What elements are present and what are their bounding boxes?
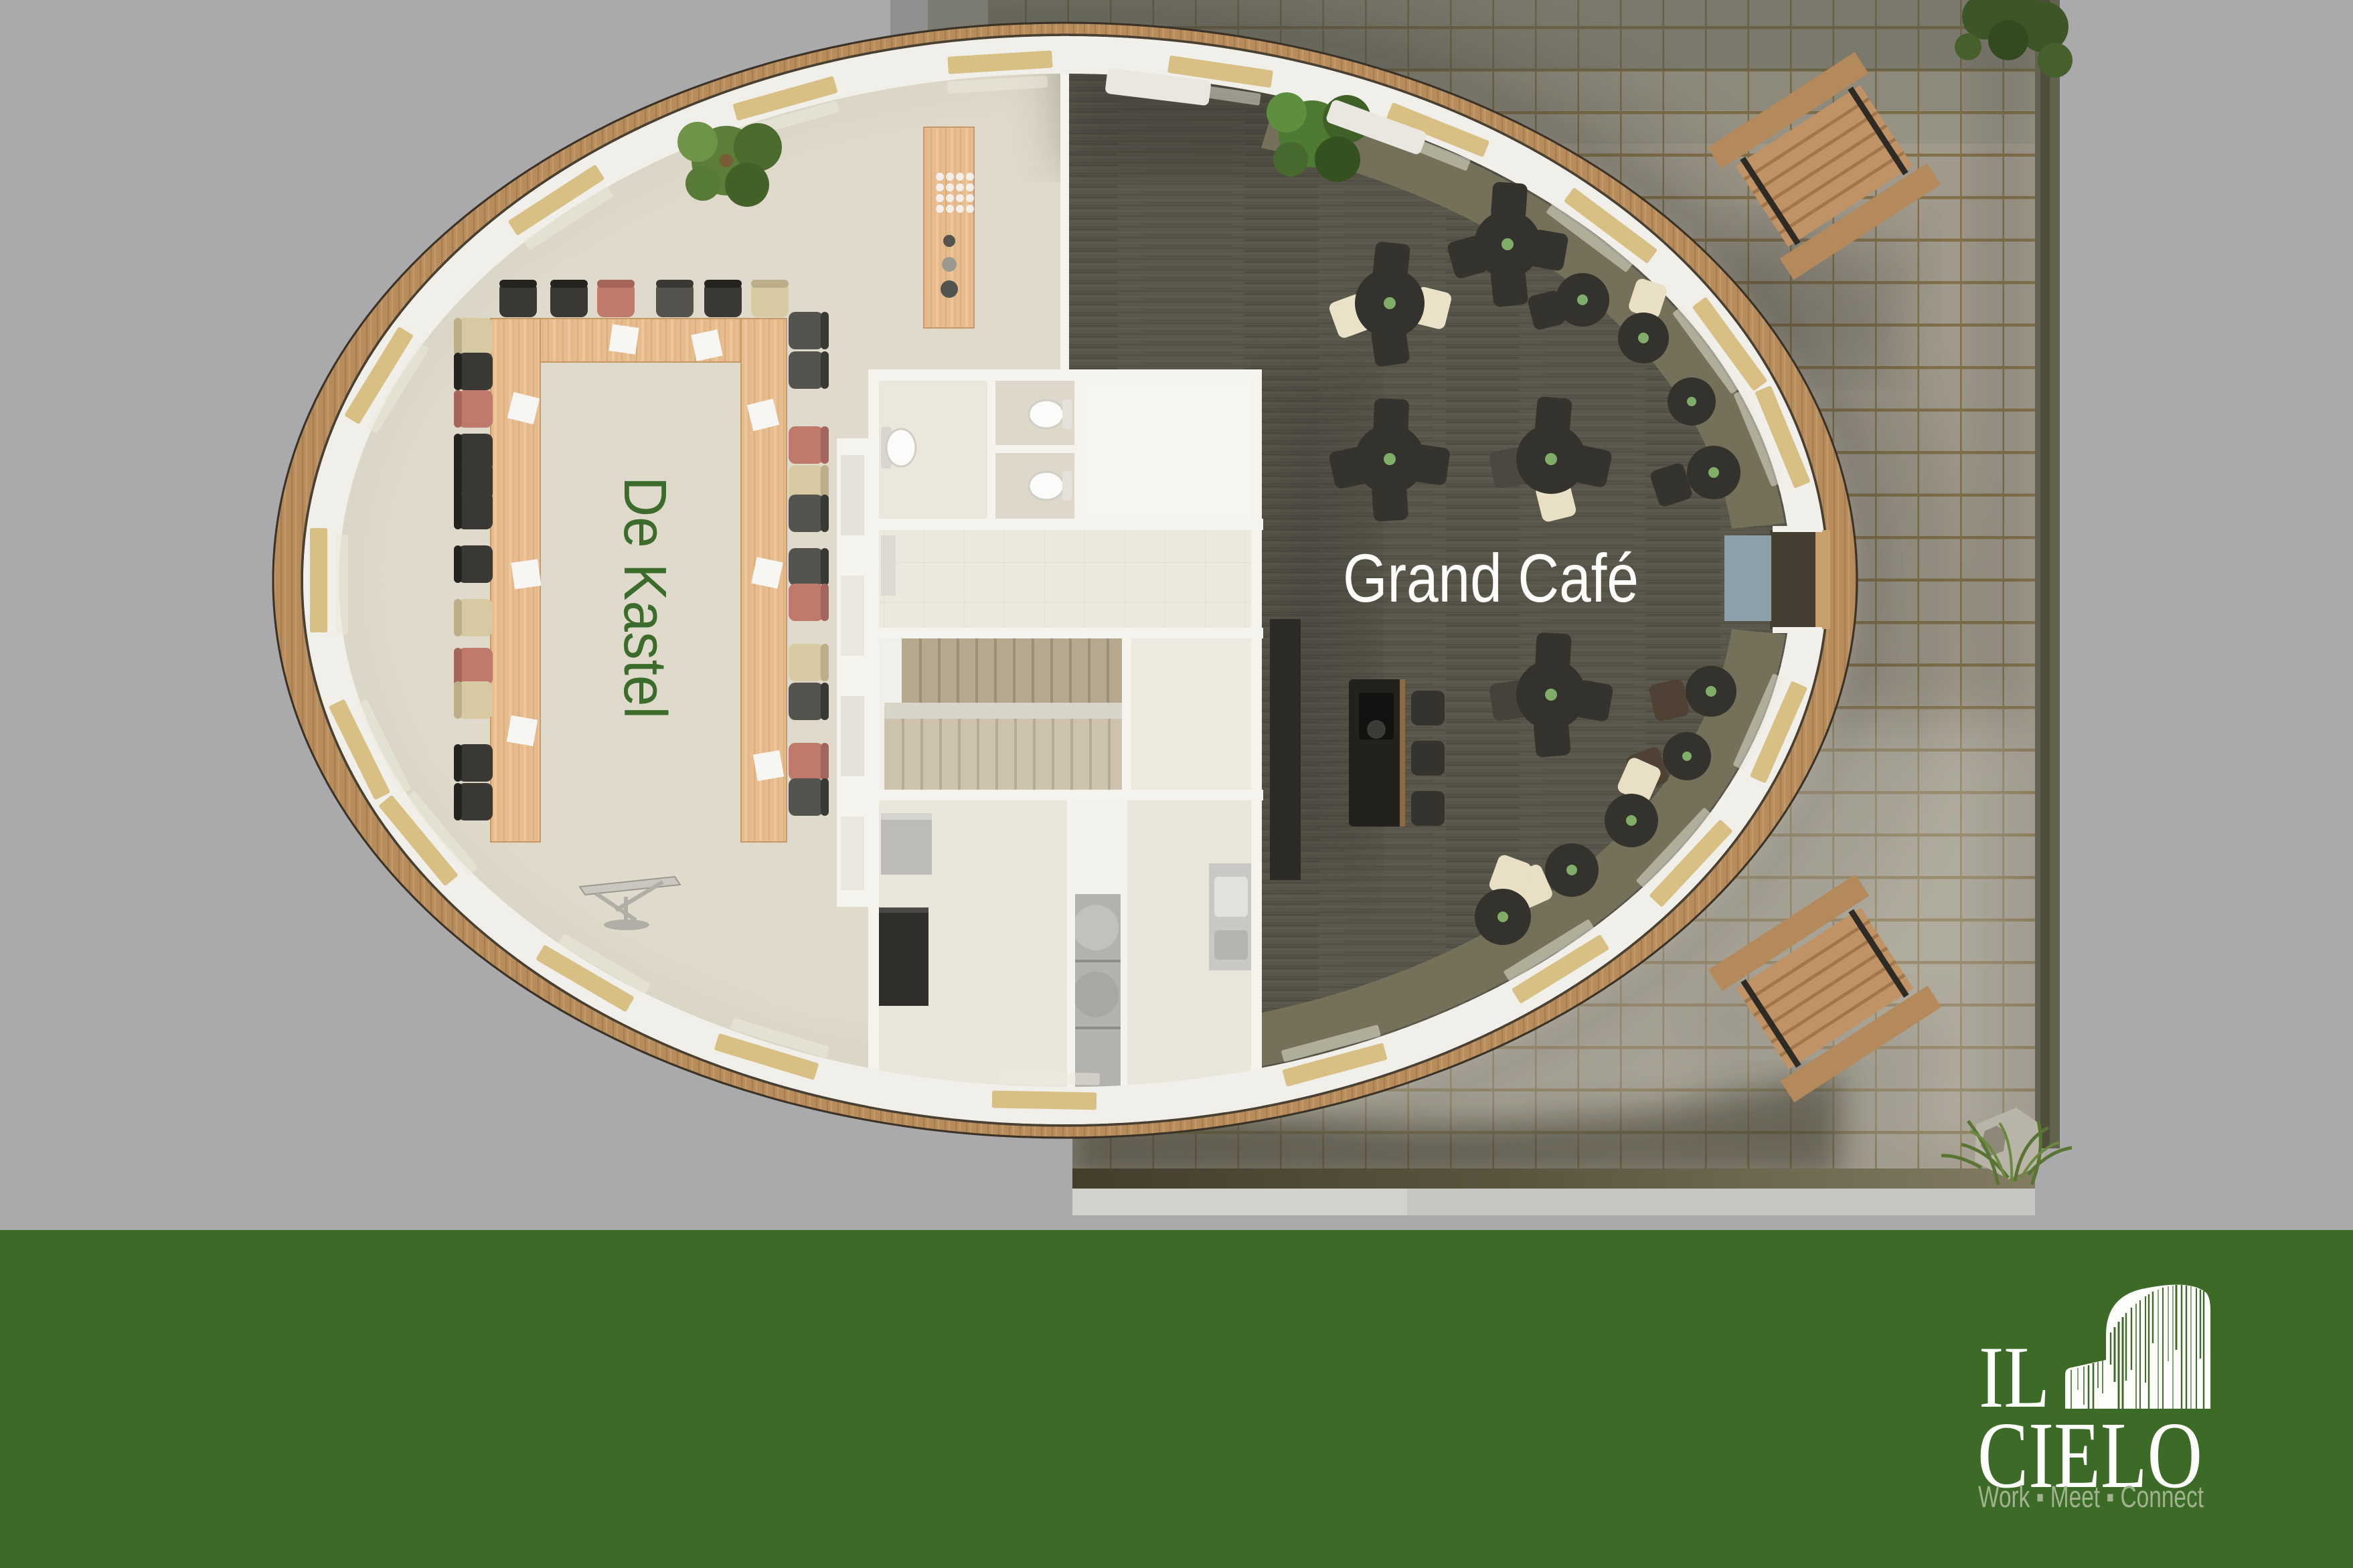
svg-text:De Kastel: De Kastel <box>611 476 678 719</box>
svg-text:Work ▪ Meet ▪ Connect: Work ▪ Meet ▪ Connect <box>1978 1480 2204 1514</box>
svg-text:Grand Café: Grand Café <box>1343 540 1639 616</box>
